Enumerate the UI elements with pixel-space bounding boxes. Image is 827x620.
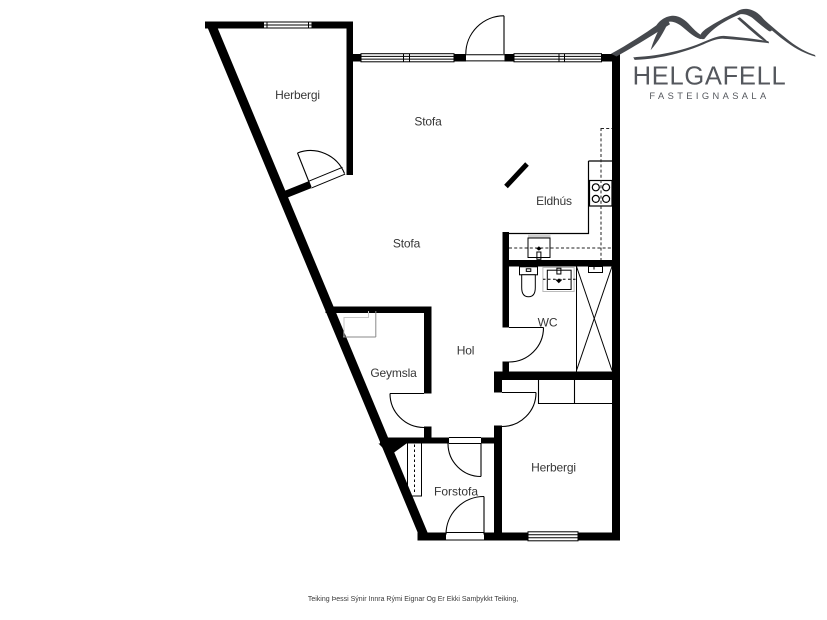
svg-text:Herbergi: Herbergi [531,461,576,475]
svg-text:HELGAFELL: HELGAFELL [633,63,787,91]
svg-text:WC: WC [538,316,558,330]
svg-text:FASTEIGNASALA: FASTEIGNASALA [649,91,769,101]
svg-text:Forstofa: Forstofa [434,485,478,499]
svg-text:Stofa: Stofa [414,115,442,129]
svg-text:Eldhús: Eldhús [536,194,572,208]
svg-text:Teiking Þessi Sýnir Innra Rými: Teiking Þessi Sýnir Innra Rými Eignar Og… [308,596,518,603]
svg-text:Hol: Hol [457,344,475,358]
svg-text:Stofa: Stofa [393,237,421,251]
svg-text:Geymsla: Geymsla [370,366,417,380]
svg-text:Herbergi: Herbergi [275,88,320,102]
